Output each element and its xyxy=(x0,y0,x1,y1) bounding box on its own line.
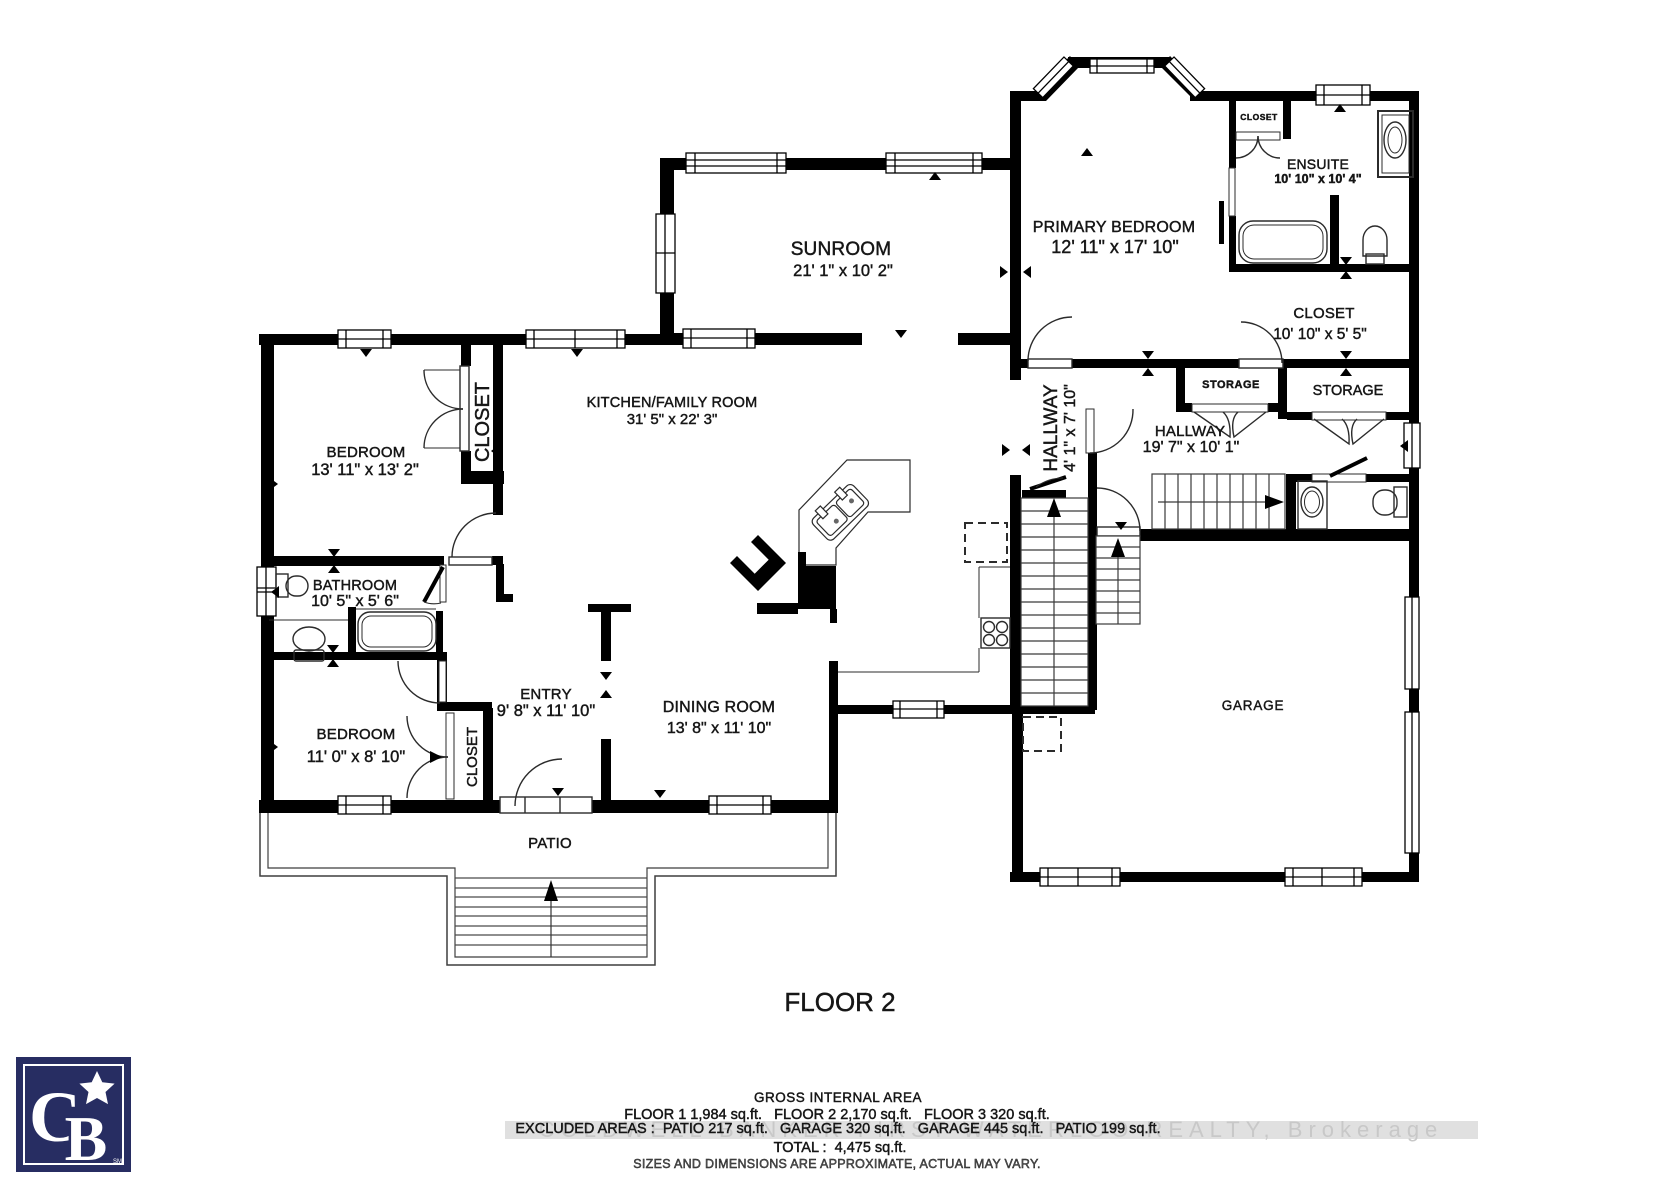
svg-text:10' 10" x 10' 4": 10' 10" x 10' 4" xyxy=(1274,172,1361,186)
svg-text:FLOOR 2: FLOOR 2 xyxy=(784,987,895,1017)
svg-text:10' 5" x 5' 6": 10' 5" x 5' 6" xyxy=(311,593,399,610)
svg-text:SUNROOM: SUNROOM xyxy=(791,239,892,260)
svg-text:STORAGE: STORAGE xyxy=(1202,379,1260,391)
svg-text:DINING ROOM: DINING ROOM xyxy=(663,699,775,716)
svg-text:CLOSET: CLOSET xyxy=(472,382,494,462)
svg-text:CLOSET: CLOSET xyxy=(1293,305,1354,322)
svg-text:19' 7" x 10' 1": 19' 7" x 10' 1" xyxy=(1143,439,1240,456)
svg-text:HALLWAY: HALLWAY xyxy=(1041,384,1062,472)
svg-text:SIZES AND DIMENSIONS ARE APPRO: SIZES AND DIMENSIONS ARE APPROXIMATE, AC… xyxy=(633,1157,1041,1171)
svg-text:ENSUITE: ENSUITE xyxy=(1287,156,1349,172)
svg-text:BATHROOM: BATHROOM xyxy=(313,578,397,594)
svg-text:HALLWAY: HALLWAY xyxy=(1155,423,1225,440)
svg-text:21' 1" x 10' 2": 21' 1" x 10' 2" xyxy=(793,262,893,280)
svg-text:KITCHEN/FAMILY ROOM: KITCHEN/FAMILY ROOM xyxy=(587,395,758,411)
svg-text:BEDROOM: BEDROOM xyxy=(317,726,396,743)
svg-text:10' 10" x 5' 5": 10' 10" x 5' 5" xyxy=(1273,326,1367,343)
svg-text:4' 1" x 7' 10": 4' 1" x 7' 10" xyxy=(1062,384,1079,472)
svg-text:12' 11" x 17' 10": 12' 11" x 17' 10" xyxy=(1051,237,1178,257)
svg-text:CLOSET: CLOSET xyxy=(464,727,481,787)
svg-text:EXCLUDED AREAS : PATIO 217 sq: EXCLUDED AREAS : PATIO 217 sq.ft. GARAGE… xyxy=(515,1121,1160,1137)
svg-text:CLOSET: CLOSET xyxy=(1240,112,1278,122)
svg-text:ENTRY: ENTRY xyxy=(520,686,572,703)
svg-text:B: B xyxy=(65,1103,108,1174)
svg-text:PATIO: PATIO xyxy=(528,835,572,852)
svg-text:13' 11" x 13' 2": 13' 11" x 13' 2" xyxy=(311,461,419,479)
svg-text:9' 8" x 11' 10": 9' 8" x 11' 10" xyxy=(497,702,596,720)
svg-text:BEDROOM: BEDROOM xyxy=(327,444,406,461)
svg-text:31' 5" x 22' 3": 31' 5" x 22' 3" xyxy=(627,411,718,428)
svg-text:PRIMARY BEDROOM: PRIMARY BEDROOM xyxy=(1033,219,1195,236)
svg-text:SM: SM xyxy=(113,1159,122,1165)
svg-text:GROSS INTERNAL AREA: GROSS INTERNAL AREA xyxy=(754,1090,922,1105)
svg-text:11' 0" x 8' 10": 11' 0" x 8' 10" xyxy=(307,748,406,766)
svg-text:GARAGE: GARAGE xyxy=(1222,698,1285,713)
svg-text:STORAGE: STORAGE xyxy=(1313,383,1384,399)
svg-text:13' 8" x 11' 10": 13' 8" x 11' 10" xyxy=(667,720,771,737)
svg-text:TOTAL : 4,475 sq.ft.: TOTAL : 4,475 sq.ft. xyxy=(774,1140,907,1156)
